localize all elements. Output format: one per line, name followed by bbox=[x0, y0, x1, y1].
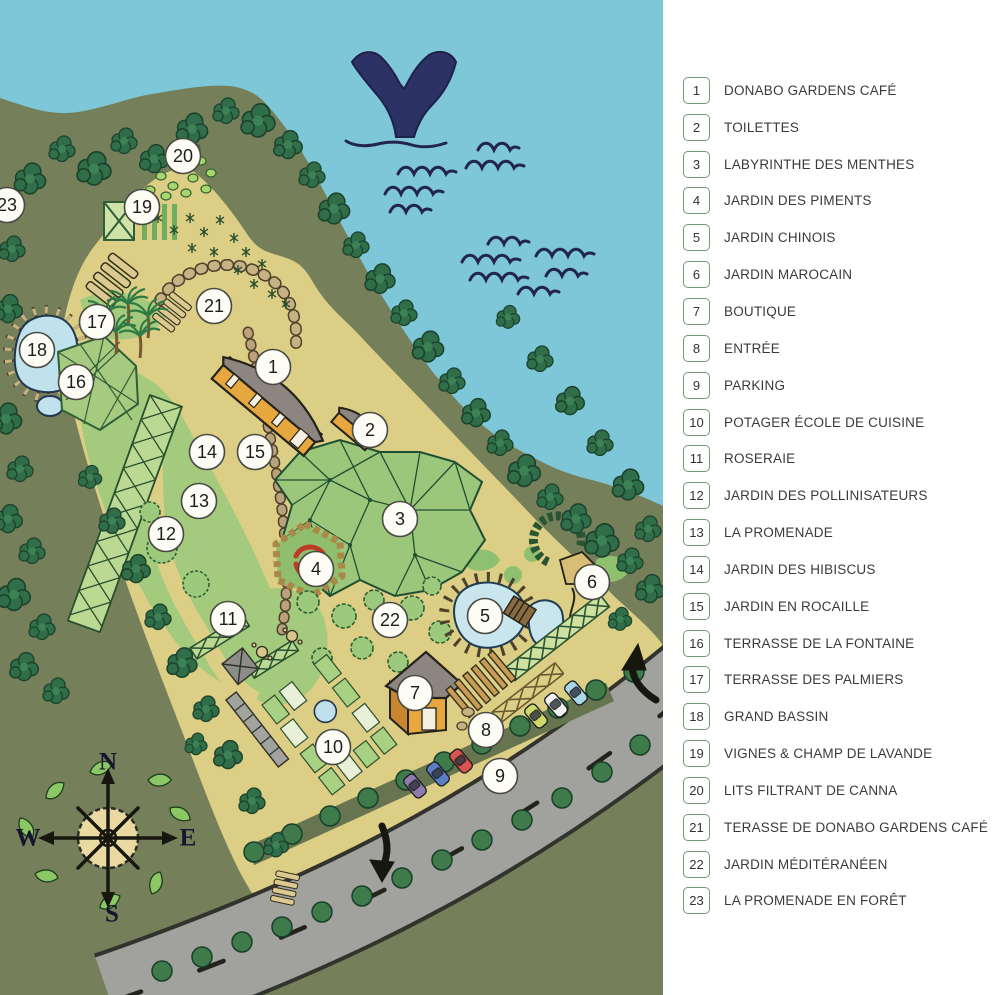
legend-item: 18 GRAND BASSIN bbox=[683, 698, 994, 735]
legend-label: JARDIN MAROCAIN bbox=[724, 267, 852, 282]
map-marker: 17 bbox=[80, 305, 115, 340]
map-marker-number: 9 bbox=[495, 766, 505, 786]
map-marker-number: 16 bbox=[66, 372, 86, 392]
legend-label: TOILETTES bbox=[724, 120, 799, 135]
legend-item: 2 TOILETTES bbox=[683, 109, 994, 146]
map-marker: 14 bbox=[190, 435, 225, 470]
legend-label: POTAGER ÉCOLE DE CUISINE bbox=[724, 415, 924, 430]
legend-number-box: 23 bbox=[683, 887, 710, 914]
map-marker: 1 bbox=[256, 350, 291, 385]
garden-map-page: N E S W 12345678910111213141516171819202… bbox=[0, 0, 1000, 995]
legend-number-box: 7 bbox=[683, 298, 710, 325]
legend-number: 18 bbox=[689, 710, 703, 723]
legend-number-box: 9 bbox=[683, 372, 710, 399]
legend-item: 1 DONABO GARDENS CAFÉ bbox=[683, 72, 994, 109]
legend-label: LA PROMENADE EN FORÊT bbox=[724, 893, 907, 908]
legend-label: VIGNES & CHAMP DE LAVANDE bbox=[724, 746, 932, 761]
map-marker-number: 2 bbox=[365, 420, 375, 440]
legend-item: 19 VIGNES & CHAMP DE LAVANDE bbox=[683, 735, 994, 772]
map-illustration: N E S W 12345678910111213141516171819202… bbox=[0, 0, 663, 995]
legend-label: LA PROMENADE bbox=[724, 525, 833, 540]
legend-number-box: 11 bbox=[683, 445, 710, 472]
legend-item: 21 TERASSE DE DONABO GARDENS CAFÉ bbox=[683, 809, 994, 846]
map-marker-number: 4 bbox=[311, 559, 321, 579]
legend-item: 23 LA PROMENADE EN FORÊT bbox=[683, 883, 994, 920]
legend-number-box: 3 bbox=[683, 151, 710, 178]
legend-label: TERASSE DE DONABO GARDENS CAFÉ bbox=[724, 820, 988, 835]
legend-item: 9 PARKING bbox=[683, 367, 994, 404]
legend-number: 10 bbox=[689, 416, 703, 429]
legend-number-box: 18 bbox=[683, 703, 710, 730]
map-marker-number: 19 bbox=[132, 197, 152, 217]
legend-number-box: 5 bbox=[683, 224, 710, 251]
legend-label: JARDIN EN ROCAILLE bbox=[724, 599, 869, 614]
legend-number-box: 22 bbox=[683, 851, 710, 878]
legend-list: 1 DONABO GARDENS CAFÉ 2 TOILETTES 3 LABY… bbox=[683, 72, 994, 919]
map-marker-number: 13 bbox=[189, 491, 209, 511]
legend-item: 13 LA PROMENADE bbox=[683, 514, 994, 551]
legend-number-box: 6 bbox=[683, 261, 710, 288]
legend-label: JARDIN DES PIMENTS bbox=[724, 193, 872, 208]
legend-item: 14 JARDIN DES HIBISCUS bbox=[683, 551, 994, 588]
legend-item: 11 ROSERAIE bbox=[683, 440, 994, 477]
legend-number-box: 15 bbox=[683, 593, 710, 620]
legend-label: PARKING bbox=[724, 378, 785, 393]
legend-label: TERRASSE DES PALMIERS bbox=[724, 672, 904, 687]
map-marker: 6 bbox=[575, 565, 610, 600]
map-marker-number: 5 bbox=[480, 606, 490, 626]
legend-item: 16 TERRASSE DE LA FONTAINE bbox=[683, 625, 994, 662]
map-marker: 12 bbox=[149, 517, 184, 552]
legend-number: 12 bbox=[689, 489, 703, 502]
legend-number-box: 20 bbox=[683, 777, 710, 804]
legend-number: 6 bbox=[693, 268, 700, 281]
map-marker: 21 bbox=[197, 289, 232, 324]
legend-number: 21 bbox=[689, 821, 703, 834]
legend-number: 22 bbox=[689, 858, 703, 871]
legend-number: 3 bbox=[693, 158, 700, 171]
map-marker-number: 7 bbox=[410, 683, 420, 703]
legend-number: 14 bbox=[689, 563, 703, 576]
map-marker-number: 17 bbox=[87, 312, 107, 332]
map-marker-number: 14 bbox=[197, 442, 217, 462]
legend-label: BOUTIQUE bbox=[724, 304, 796, 319]
map-marker: 8 bbox=[469, 713, 504, 748]
compass-south-label: S bbox=[105, 901, 119, 928]
legend-number-box: 17 bbox=[683, 666, 710, 693]
map-marker-number: 6 bbox=[587, 572, 597, 592]
map-marker: 16 bbox=[59, 365, 94, 400]
map-marker: 15 bbox=[238, 435, 273, 470]
map-marker: 18 bbox=[20, 333, 55, 368]
legend-number: 1 bbox=[693, 84, 700, 97]
legend-panel: 1 DONABO GARDENS CAFÉ 2 TOILETTES 3 LABY… bbox=[663, 0, 1000, 995]
map-marker-number: 20 bbox=[173, 146, 193, 166]
map-marker: 7 bbox=[398, 676, 433, 711]
map-marker-number: 10 bbox=[323, 737, 343, 757]
legend-number-box: 2 bbox=[683, 114, 710, 141]
legend-item: 7 BOUTIQUE bbox=[683, 293, 994, 330]
legend-label: LABYRINTHE DES MENTHES bbox=[724, 157, 914, 172]
legend-number-box: 19 bbox=[683, 740, 710, 767]
legend-item: 12 JARDIN DES POLLINISATEURS bbox=[683, 477, 994, 514]
legend-number: 19 bbox=[689, 747, 703, 760]
map-marker-number: 8 bbox=[481, 720, 491, 740]
legend-number: 7 bbox=[693, 305, 700, 318]
legend-number-box: 16 bbox=[683, 630, 710, 657]
legend-number: 16 bbox=[689, 637, 703, 650]
map-marker: 11 bbox=[211, 602, 246, 637]
map-marker-number: 21 bbox=[204, 296, 224, 316]
legend-label: GRAND BASSIN bbox=[724, 709, 828, 724]
legend-number: 17 bbox=[689, 673, 703, 686]
map-marker: 3 bbox=[383, 502, 418, 537]
map-marker: 2 bbox=[353, 413, 388, 448]
map-marker-number: 18 bbox=[27, 340, 47, 360]
legend-item: 8 ENTRÉE bbox=[683, 330, 994, 367]
legend-number-box: 21 bbox=[683, 814, 710, 841]
legend-number: 9 bbox=[693, 379, 700, 392]
legend-item: 6 JARDIN MAROCAIN bbox=[683, 256, 994, 293]
map-marker: 9 bbox=[483, 759, 518, 794]
map-marker: 22 bbox=[373, 603, 408, 638]
legend-item: 10 POTAGER ÉCOLE DE CUISINE bbox=[683, 404, 994, 441]
legend-label: ROSERAIE bbox=[724, 451, 795, 466]
legend-number: 20 bbox=[689, 784, 703, 797]
map-marker-number: 15 bbox=[245, 442, 265, 462]
legend-item: 22 JARDIN MÉDITÉRANÉEN bbox=[683, 846, 994, 883]
compass-north-label: N bbox=[99, 749, 117, 776]
map-marker-number: 1 bbox=[268, 357, 278, 377]
legend-number: 5 bbox=[693, 231, 700, 244]
map-marker: 5 bbox=[468, 599, 503, 634]
map-marker-number: 3 bbox=[395, 509, 405, 529]
legend-label: JARDIN DES HIBISCUS bbox=[724, 562, 876, 577]
legend-item: 5 JARDIN CHINOIS bbox=[683, 219, 994, 256]
legend-number-box: 14 bbox=[683, 556, 710, 583]
legend-number: 13 bbox=[689, 526, 703, 539]
map-marker-number: 11 bbox=[219, 609, 238, 629]
legend-item: 3 LABYRINTHE DES MENTHES bbox=[683, 146, 994, 183]
legend-number-box: 1 bbox=[683, 77, 710, 104]
legend-number: 11 bbox=[690, 452, 704, 465]
legend-label: TERRASSE DE LA FONTAINE bbox=[724, 636, 914, 651]
legend-label: LITS FILTRANT DE CANNA bbox=[724, 783, 897, 798]
legend-number-box: 4 bbox=[683, 187, 710, 214]
legend-label: ENTRÉE bbox=[724, 341, 780, 356]
legend-number-box: 8 bbox=[683, 335, 710, 362]
legend-item: 4 JARDIN DES PIMENTS bbox=[683, 183, 994, 220]
map-marker: 4 bbox=[299, 552, 334, 587]
map-marker: 20 bbox=[166, 139, 201, 174]
legend-label: JARDIN CHINOIS bbox=[724, 230, 836, 245]
legend-label: DONABO GARDENS CAFÉ bbox=[724, 83, 897, 98]
legend-number: 8 bbox=[693, 342, 700, 355]
legend-number-box: 12 bbox=[683, 482, 710, 509]
legend-number: 4 bbox=[693, 194, 700, 207]
legend-item: 20 LITS FILTRANT DE CANNA bbox=[683, 772, 994, 809]
legend-number: 15 bbox=[689, 600, 703, 613]
legend-number-box: 10 bbox=[683, 409, 710, 436]
map-marker-number: 22 bbox=[380, 610, 400, 630]
legend-number-box: 13 bbox=[683, 519, 710, 546]
legend-number: 2 bbox=[693, 121, 700, 134]
compass-west-label: W bbox=[16, 825, 41, 852]
map-marker: 13 bbox=[182, 484, 217, 519]
map-marker-number: 12 bbox=[156, 524, 176, 544]
compass-east-label: E bbox=[180, 825, 197, 852]
legend-label: JARDIN MÉDITÉRANÉEN bbox=[724, 857, 888, 872]
map-marker-number: 23 bbox=[0, 195, 17, 215]
legend-item: 15 JARDIN EN ROCAILLE bbox=[683, 588, 994, 625]
map-marker: 19 bbox=[125, 190, 160, 225]
legend-label: JARDIN DES POLLINISATEURS bbox=[724, 488, 928, 503]
map-marker: 10 bbox=[316, 730, 351, 765]
legend-item: 17 TERRASSE DES PALMIERS bbox=[683, 662, 994, 699]
legend-number: 23 bbox=[689, 894, 703, 907]
